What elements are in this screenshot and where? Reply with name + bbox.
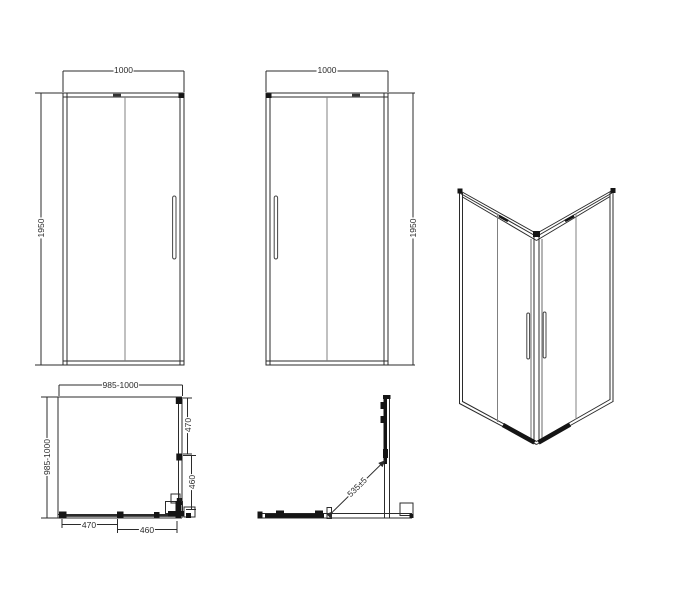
perspective-view bbox=[458, 188, 616, 445]
dim-front-b-width: 1000 bbox=[317, 65, 338, 75]
dim-front-b-height: 1950 bbox=[408, 218, 418, 239]
dim-plan-bottom-right: 460 bbox=[139, 525, 155, 535]
dim-plan-right-lower: 460 bbox=[187, 474, 197, 490]
dim-plan-right-upper: 470 bbox=[183, 417, 193, 433]
dim-plan-depth: 985-1000 bbox=[42, 438, 52, 476]
dim-plan-width: 985-1000 bbox=[102, 380, 140, 390]
dim-plan-bottom-left: 470 bbox=[81, 520, 97, 530]
technical-drawing: 1000 1950 1000 1950 985-1000 985-1000 47… bbox=[0, 0, 675, 600]
corner-detail-view bbox=[258, 395, 414, 519]
dim-front-a-width: 1000 bbox=[113, 65, 134, 75]
plan-view bbox=[41, 385, 196, 533]
drawing-linework bbox=[0, 0, 675, 600]
front-view-a bbox=[35, 71, 184, 365]
front-view-b bbox=[266, 71, 415, 365]
dim-front-a-height: 1950 bbox=[36, 218, 46, 239]
